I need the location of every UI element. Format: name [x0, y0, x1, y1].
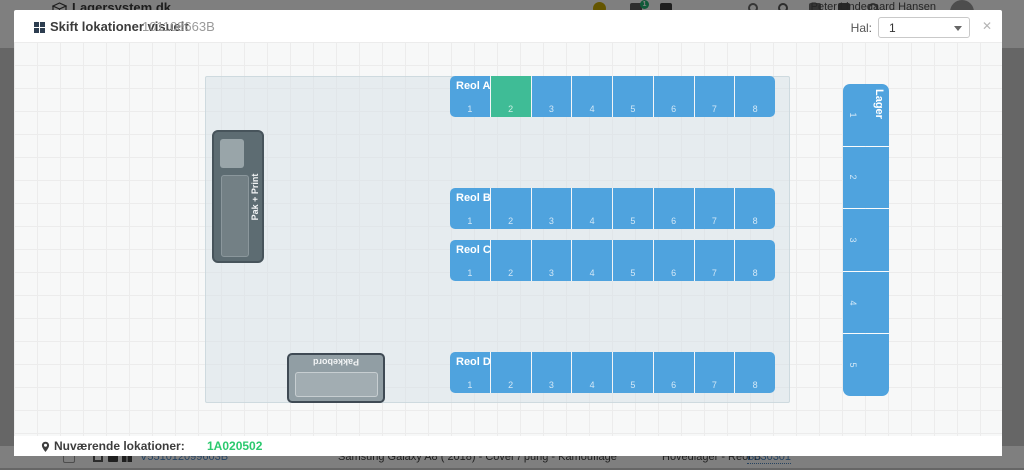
hal-selected-value: 1 — [889, 21, 896, 35]
shelf-c-cell-5[interactable]: 5 — [613, 240, 653, 281]
cell-number: 4 — [848, 300, 858, 305]
shelf-label-c: Reol C — [456, 244, 491, 256]
close-icon[interactable]: ✕ — [982, 19, 992, 33]
cell-number: 3 — [532, 104, 572, 114]
shelf-c-cell-1[interactable]: Reol C1 — [450, 240, 490, 281]
hal-label: Hal: — [851, 21, 872, 35]
shelf-d-cell-3[interactable]: 3 — [532, 352, 572, 393]
shelf-a-cell-6[interactable]: 6 — [654, 76, 694, 117]
cell-number: 3 — [848, 237, 858, 242]
shelf-b-cell-7[interactable]: 7 — [695, 188, 735, 229]
cell-number: 5 — [613, 268, 653, 278]
shelf-d-cell-4[interactable]: 4 — [572, 352, 612, 393]
cell-number: 4 — [572, 216, 612, 226]
shelf-b-cell-4[interactable]: 4 — [572, 188, 612, 229]
modal-footer: Nuværende lokationer: 1A020502 — [14, 436, 1002, 456]
cell-number: 6 — [654, 104, 694, 114]
shelf-d-cell-5[interactable]: 5 — [613, 352, 653, 393]
cell-number: 2 — [848, 175, 858, 180]
shelf-label-b: Reol B — [456, 192, 491, 204]
shelf-b-cell-2[interactable]: 2 — [491, 188, 531, 229]
shelf-d-cell-8[interactable]: 8 — [735, 352, 775, 393]
cell-number: 1 — [848, 112, 858, 117]
cell-number: 1 — [450, 216, 490, 226]
cell-number: 3 — [532, 380, 572, 390]
shelf-a-cell-3[interactable]: 3 — [532, 76, 572, 117]
cell-number: 8 — [735, 380, 775, 390]
cell-number: 3 — [532, 216, 572, 226]
cell-number: 4 — [572, 380, 612, 390]
grid-squares-icon — [34, 20, 45, 31]
cell-number: 4 — [572, 104, 612, 114]
cell-number: 6 — [654, 216, 694, 226]
shelf-a-cell-5[interactable]: 5 — [613, 76, 653, 117]
shelf-row-d: Reol D12345678 — [450, 352, 775, 393]
modal-header: Skift lokationer visuelt 101108663B Hal:… — [14, 10, 1002, 42]
cell-number: 1 — [450, 104, 490, 114]
packing-table-label: Pakkebord — [289, 357, 383, 367]
packing-table-surface — [295, 372, 378, 397]
hal-select[interactable]: 1 — [878, 17, 970, 38]
page-background: Lagersystem.dk 1 Peter Lindegaard Hansen… — [0, 0, 1024, 470]
shelf-d-cell-7[interactable]: 7 — [695, 352, 735, 393]
shelf-d-cell-2[interactable]: 2 — [491, 352, 531, 393]
shelf-b-cell-3[interactable]: 3 — [532, 188, 572, 229]
shelf-c-cell-7[interactable]: 7 — [695, 240, 735, 281]
shelf-row-c: Reol C12345678 — [450, 240, 775, 281]
cell-number: 6 — [654, 268, 694, 278]
shelf-a-cell-1[interactable]: Reol A1 — [450, 76, 490, 117]
pak-print-screen — [220, 139, 244, 168]
shelf-label-d: Reol D — [456, 356, 491, 368]
shelf-c-cell-3[interactable]: 3 — [532, 240, 572, 281]
lager-cell-5[interactable]: 5 — [843, 334, 889, 396]
cell-number: 5 — [848, 363, 858, 368]
chevron-down-icon — [954, 26, 962, 31]
lager-cell-3[interactable]: 3 — [843, 209, 889, 271]
cell-number: 8 — [735, 268, 775, 278]
shelf-c-cell-8[interactable]: 8 — [735, 240, 775, 281]
shelf-a-cell-8[interactable]: 8 — [735, 76, 775, 117]
shelf-c-cell-4[interactable]: 4 — [572, 240, 612, 281]
cell-number: 4 — [572, 268, 612, 278]
cell-number: 2 — [491, 104, 531, 114]
shelf-b-cell-5[interactable]: 5 — [613, 188, 653, 229]
current-location-value: 1A020502 — [207, 439, 262, 453]
cell-number: 2 — [491, 216, 531, 226]
shelf-c-cell-2[interactable]: 2 — [491, 240, 531, 281]
lager-cell-1[interactable]: Lager1 — [843, 84, 889, 146]
lager-label: Lager — [873, 89, 885, 119]
shelf-b-cell-6[interactable]: 6 — [654, 188, 694, 229]
cell-number: 7 — [695, 380, 735, 390]
cell-number: 5 — [613, 380, 653, 390]
lager-cell-4[interactable]: 4 — [843, 272, 889, 334]
cell-number: 3 — [532, 268, 572, 278]
pak-print-station: Pak + Print — [212, 130, 264, 263]
shelf-b-cell-1[interactable]: Reol B1 — [450, 188, 490, 229]
packing-table: Pakkebord — [287, 353, 385, 403]
cell-number: 5 — [613, 104, 653, 114]
shelf-a-cell-2[interactable]: 2 — [491, 76, 531, 117]
cell-number: 1 — [450, 380, 490, 390]
shelf-row-b: Reol B12345678 — [450, 188, 775, 229]
shelf-row-a: Reol A12345678 — [450, 76, 775, 117]
cell-number: 2 — [491, 268, 531, 278]
shelf-label-a: Reol A — [456, 80, 490, 92]
modal-barcode: 101108663B — [142, 19, 215, 34]
cell-number: 5 — [613, 216, 653, 226]
shelf-a-cell-7[interactable]: 7 — [695, 76, 735, 117]
cell-number: 7 — [695, 104, 735, 114]
cell-number: 7 — [695, 268, 735, 278]
cell-number: 2 — [491, 380, 531, 390]
current-locations-label: Nuværende lokationer: — [54, 439, 185, 453]
change-locations-modal: Skift lokationer visuelt 101108663B Hal:… — [14, 10, 1002, 456]
shelf-a-cell-4[interactable]: 4 — [572, 76, 612, 117]
cell-number: 8 — [735, 104, 775, 114]
shelf-d-cell-6[interactable]: 6 — [654, 352, 694, 393]
lager-cell-2[interactable]: 2 — [843, 147, 889, 209]
pak-print-table — [221, 175, 249, 257]
pak-print-label: Pak + Print — [250, 173, 260, 220]
shelf-c-cell-6[interactable]: 6 — [654, 240, 694, 281]
shelf-d-cell-1[interactable]: Reol D1 — [450, 352, 490, 393]
cell-number: 6 — [654, 380, 694, 390]
cell-number: 1 — [450, 268, 490, 278]
floor-plan: Pak + Print Pakkebord Reol A12345678Reol… — [14, 42, 1002, 436]
lager-column: Lager12345 — [843, 84, 889, 396]
cell-number: 8 — [735, 216, 775, 226]
shelf-b-cell-8[interactable]: 8 — [735, 188, 775, 229]
location-pin-icon — [41, 440, 50, 458]
cell-number: 7 — [695, 216, 735, 226]
